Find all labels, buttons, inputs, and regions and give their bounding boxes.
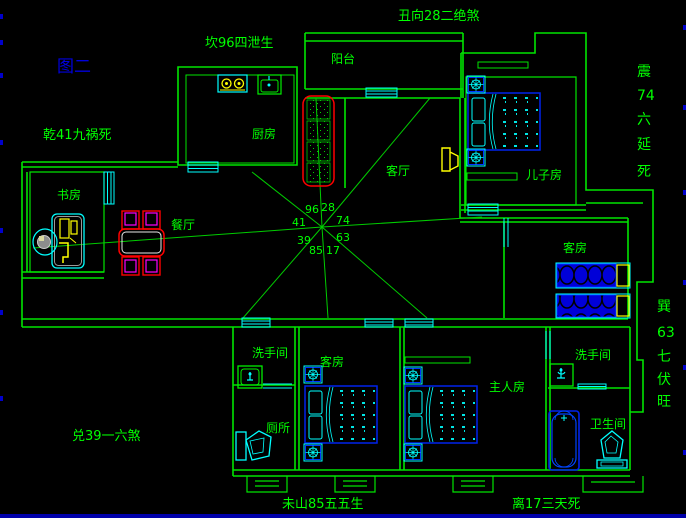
label-guest-room-bottom: 客房 [320, 354, 344, 369]
vertical-char: 七 [657, 349, 671, 365]
center-number-w: 41 [292, 216, 306, 229]
center-number-n: 28 [321, 201, 335, 214]
vertical-char: 震 [637, 64, 651, 80]
label-study: 书房 [57, 187, 81, 202]
label-living-room: 客厅 [386, 163, 410, 178]
center-number-s1: 85 [309, 244, 323, 257]
annotation-top-center: 丑向28二绝煞 [398, 8, 480, 24]
label-dining: 餐厅 [171, 217, 195, 232]
vertical-char: 巽 [657, 299, 671, 315]
label-guest-room-right: 客房 [563, 240, 587, 255]
figure-label: 图二 [57, 57, 91, 77]
center-number-s2: 17 [326, 244, 340, 257]
label-bathroom: 卫生间 [590, 417, 626, 431]
annotation-bottom-center: 未山85五五生 [282, 497, 364, 512]
cad-floorplan-window: 坎96四泄生 丑向28二绝煞 乾41九祸死 兑39一六煞 未山85五五生 离17… [0, 0, 686, 518]
label-son-room: 儿子房 [526, 167, 562, 182]
vertical-char: 延 [637, 137, 651, 153]
annotation-bottom-right: 离17三天死 [512, 496, 581, 512]
annotation-left: 乾41九祸死 [43, 128, 112, 143]
label-washroom-right: 洗手间 [575, 348, 611, 362]
label-washroom-left: 洗手间 [252, 346, 288, 360]
vertical-char: 74 [637, 88, 655, 104]
label-balcony: 阳台 [331, 51, 355, 66]
vertical-char: 伏 [657, 372, 671, 388]
label-kitchen: 厨房 [252, 126, 276, 141]
vertical-char: 死 [637, 164, 651, 180]
annotation-bottom-left: 兑39一六煞 [72, 429, 141, 444]
label-master-room: 主人房 [489, 379, 525, 394]
bottom-status-bar [0, 514, 686, 518]
center-number-nw: 96 [305, 203, 319, 216]
floorplan-canvas[interactable]: 坎96四泄生 丑向28二绝煞 乾41九祸死 兑39一六煞 未山85五五生 离17… [0, 0, 686, 518]
annotation-top-left: 坎96四泄生 [205, 36, 274, 51]
vertical-char: 六 [637, 112, 651, 128]
center-number-se: 63 [336, 231, 350, 244]
label-toilet: 厕所 [266, 421, 290, 435]
vertical-char: 旺 [657, 394, 671, 410]
center-number-ne: 74 [336, 214, 350, 227]
vertical-char: 63 [657, 325, 675, 341]
